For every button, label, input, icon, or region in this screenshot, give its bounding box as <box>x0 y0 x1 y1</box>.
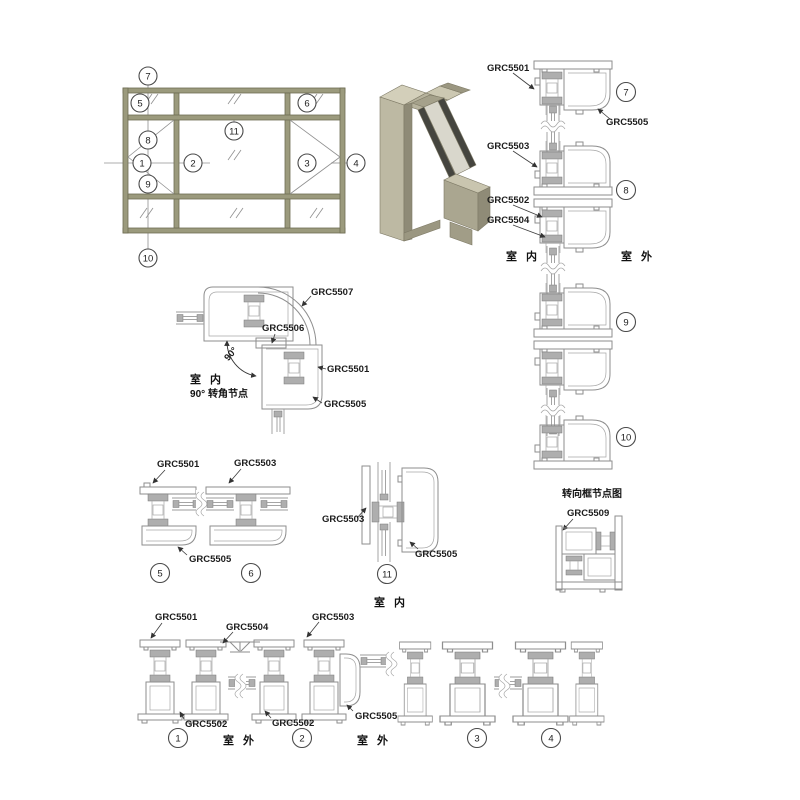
indoor-label: 室 内 <box>374 595 408 609</box>
balloon-8: 8 <box>139 131 157 149</box>
balloon-11: 11 <box>225 122 243 140</box>
balloon-5-number: 5 <box>137 99 142 110</box>
balloon-1-number: 1 <box>139 159 144 170</box>
leader-grc5505 <box>178 547 187 555</box>
leader-grc5501 <box>153 470 165 483</box>
break-symbol <box>235 672 246 700</box>
leader-grc5507 <box>302 296 311 306</box>
balloon-9: 9 <box>139 175 157 193</box>
label-grc5501: GRC5501 <box>155 612 198 623</box>
label-grc5505: GRC5505 <box>355 711 398 722</box>
balloon-11-mid: 11 <box>378 565 397 584</box>
leader-grc5504 <box>223 632 233 643</box>
balloon-6-number: 6 <box>248 569 253 580</box>
balloon-8-number: 8 <box>623 186 628 197</box>
bottom-section-row: GRC5501 GRC5504 GRC5503 GRC5502 GRC5502 … <box>138 612 604 748</box>
balloon-4-number: 4 <box>353 159 358 170</box>
section-9-lower-profile <box>534 341 612 395</box>
label-grc5503: GRC5503 <box>322 514 364 525</box>
mullion-chamber <box>402 468 438 552</box>
section-7-profile <box>534 61 612 115</box>
balloon-11-number: 11 <box>382 570 392 581</box>
label-grc5501: GRC5501 <box>327 364 370 375</box>
balloon-8-number: 8 <box>145 136 150 147</box>
glass-unit <box>176 312 204 324</box>
section-2-right-profile <box>302 640 346 723</box>
label-grc5505: GRC5505 <box>415 549 458 560</box>
label-grc5501: GRC5501 <box>157 459 200 470</box>
glass-unit-up <box>378 462 390 502</box>
break-symbol <box>539 121 567 132</box>
balloon-6: 6 <box>298 94 316 112</box>
balloon-2-number: 2 <box>190 159 195 170</box>
balloon-9-number: 9 <box>623 318 628 329</box>
profile-3d-render <box>380 83 490 245</box>
section-4-right-profile <box>570 642 604 725</box>
label-grc5505: GRC5505 <box>324 399 367 410</box>
balloon-11-number: 11 <box>229 127 239 138</box>
balloon-7-right: 7 <box>617 83 636 102</box>
balloon-3: 3 <box>298 154 316 172</box>
section-1-right-profile <box>184 640 228 723</box>
balloon-1-bottom: 1 <box>169 729 188 748</box>
indoor-label: 室 内 <box>506 249 540 263</box>
label-grc5503: GRC5503 <box>234 458 276 469</box>
outdoor-label-b: 室 外 <box>357 733 391 747</box>
break-symbol <box>499 672 510 700</box>
balloon-9-right: 9 <box>617 313 636 332</box>
section-9-upper-profile <box>534 283 612 337</box>
label-grc5504: GRC5504 <box>487 215 530 226</box>
leader-grc5503 <box>513 151 537 167</box>
frame-round-chamber <box>340 654 360 706</box>
balloon-8-right: 8 <box>617 181 636 200</box>
turning-frame-title: 转向框节点图 <box>562 487 622 500</box>
break-symbol <box>539 405 567 416</box>
break-symbol <box>386 650 397 678</box>
balloon-10-number: 10 <box>621 433 632 444</box>
sections-5-6: GRC5501 GRC5503 GRC5505 5 6 <box>140 458 290 583</box>
window-system-drawing: 7 5 6 11 8 1 2 3 4 9 10 <box>0 0 800 800</box>
glass-unit-down <box>378 522 390 562</box>
label-grc5502-a: GRC5502 <box>185 719 227 730</box>
balloon-1: 1 <box>133 154 151 172</box>
balloon-9-number: 9 <box>145 180 150 191</box>
corner-arc-inner <box>258 293 310 345</box>
leader-grc5501 <box>151 623 162 638</box>
turning-frame-detail: 转向框节点图 GRC5509 <box>556 487 622 592</box>
break-symbol <box>196 490 207 518</box>
balloon-2-number: 2 <box>299 734 304 745</box>
balloon-5-mid: 5 <box>151 564 170 583</box>
balloon-3-bottom: 3 <box>468 729 487 748</box>
balloon-4-bottom: 4 <box>542 729 561 748</box>
mullion-flange <box>362 466 370 544</box>
label-grc5505: GRC5505 <box>606 117 649 128</box>
section-8-upper-profile <box>534 141 612 195</box>
label-grc5504: GRC5504 <box>226 622 269 633</box>
outdoor-label-a: 室 外 <box>223 733 257 747</box>
section-11: GRC5503 GRC5505 11 室 内 <box>322 462 458 609</box>
section-3-right-profile <box>440 642 495 725</box>
balloon-7: 7 <box>139 67 157 85</box>
label-grc5506: GRC5506 <box>262 323 304 334</box>
glass-unit <box>272 409 284 434</box>
leader-grc5503 <box>307 622 319 637</box>
section-6-profile <box>206 487 290 545</box>
corner-connector <box>256 338 286 348</box>
label-grc5509: GRC5509 <box>567 508 609 519</box>
label-grc5502: GRC5502 <box>487 195 529 206</box>
label-grc5507: GRC5507 <box>311 287 353 298</box>
label-grc5503: GRC5503 <box>487 141 529 152</box>
angle-90-label: 90° <box>222 345 240 363</box>
balloon-2: 2 <box>184 154 202 172</box>
balloon-5: 5 <box>131 94 149 112</box>
label-grc5502-b: GRC5502 <box>272 718 314 729</box>
leader-grc5501 <box>513 73 534 89</box>
section-8-lower-profile <box>534 199 612 253</box>
balloon-3-number: 3 <box>304 159 309 170</box>
section-5-profile <box>140 483 200 545</box>
label-grc5503: GRC5503 <box>312 612 354 623</box>
balloon-4-number: 4 <box>548 734 553 745</box>
indoor-label: 室 内 <box>190 372 224 386</box>
balloon-2-bottom: 2 <box>293 729 312 748</box>
elevation-diagram: 7 5 6 11 8 1 2 3 4 9 10 <box>104 67 365 267</box>
balloon-1-number: 1 <box>175 734 180 745</box>
label-grc5505: GRC5505 <box>189 554 232 565</box>
balloon-7-number: 7 <box>623 88 628 99</box>
balloon-5-number: 5 <box>157 569 162 580</box>
section-2-left-profile <box>252 640 296 723</box>
section-1-left-profile <box>138 640 182 723</box>
outdoor-label: 室 外 <box>621 249 655 263</box>
balloon-10: 10 <box>139 249 157 267</box>
balloon-6-number: 6 <box>304 99 309 110</box>
corner-joint-detail: 90° GRC5507 GRC5506 GRC5501 GRC5505 室 内 … <box>176 287 370 434</box>
label-grc5501: GRC5501 <box>487 63 530 74</box>
glass-unit <box>360 655 388 667</box>
balloon-4: 4 <box>347 154 365 172</box>
right-section-column: GRC5501 GRC5505 GRC5503 GRC5502 GRC5504 … <box>487 61 655 469</box>
corner-caption: 90° 转角节点 <box>190 387 248 400</box>
balloon-10-right: 10 <box>617 428 636 447</box>
leader-grc5503 <box>229 469 241 483</box>
drawing-canvas: 7 5 6 11 8 1 2 3 4 9 10 <box>0 0 800 800</box>
balloon-7-number: 7 <box>145 72 150 83</box>
balloon-10-number: 10 <box>143 254 154 265</box>
section-3-left-profile <box>398 642 432 725</box>
balloon-6-mid: 6 <box>242 564 261 583</box>
break-symbol <box>539 263 567 274</box>
balloon-3-number: 3 <box>474 734 479 745</box>
section-10-profile <box>534 415 612 469</box>
